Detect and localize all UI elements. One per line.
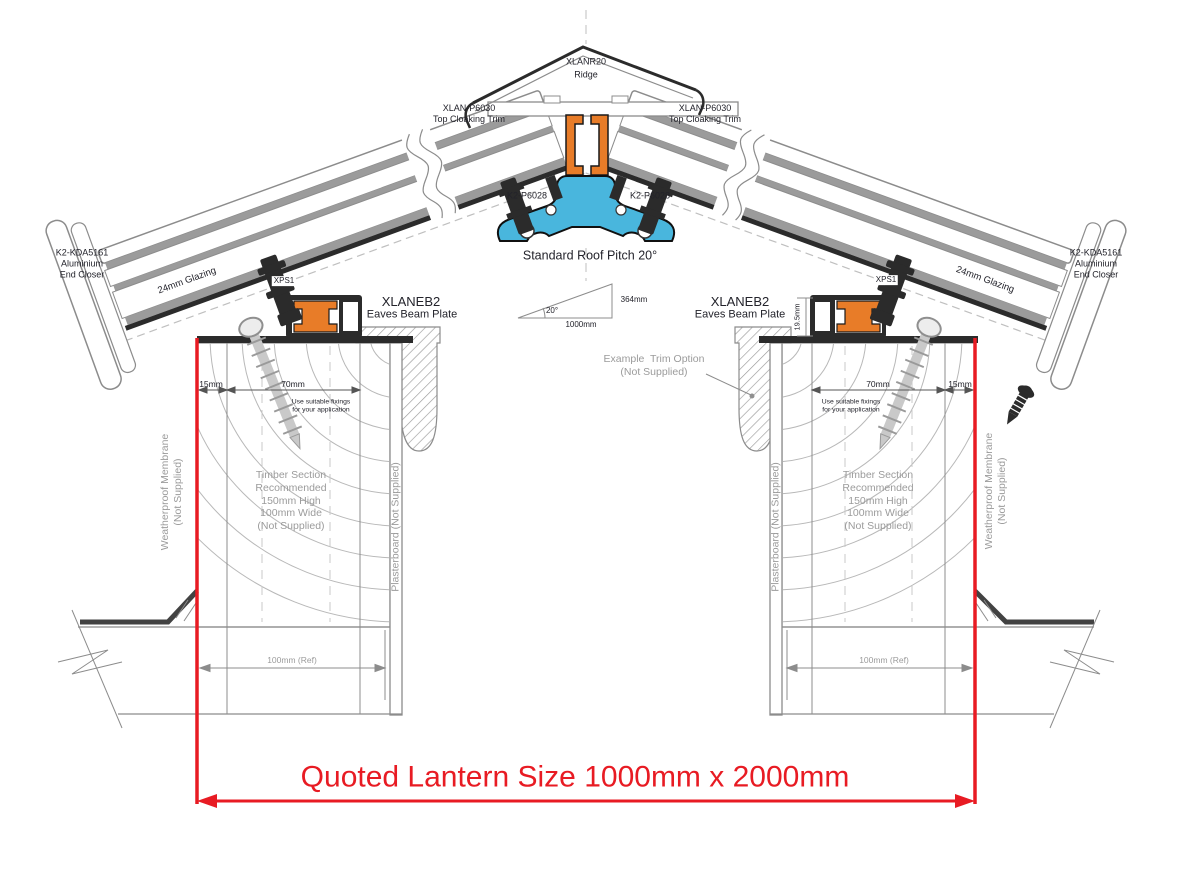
- right-eaves-beam-name: Eaves Beam Plate: [695, 308, 786, 321]
- left-timber-note: Timber SectionRecommended150mm High100mm…: [255, 469, 326, 533]
- right-timber-note: Timber SectionRecommended150mm High100mm…: [842, 469, 913, 533]
- left-upstand-ref-label: 100mm (Ref): [267, 655, 317, 665]
- right-fixing-note: Use suitable fixingsfor your application: [822, 399, 881, 416]
- screw-icon: [999, 382, 1037, 429]
- left-plasterboard-note: Plasterboard (Not Supplied): [390, 462, 403, 592]
- roof-lantern-section-drawing: XLANR20 Ridge XLAN-P6030Top Cloaking Tri…: [0, 0, 1184, 872]
- pitch-rise-label: 364mm: [621, 295, 648, 305]
- quoted-lantern-size: Quoted Lantern Size 1000mm x 2000mm: [301, 760, 850, 797]
- left-eaves-beam-name: Eaves Beam Plate: [367, 308, 458, 321]
- right-gasket-label: XPS1: [874, 275, 898, 285]
- right-cloaking-trim-label: XLAN-P6030Top Cloaking Trim: [669, 103, 741, 125]
- right-upstand-ref-label: 100mm (Ref): [859, 655, 909, 665]
- right-fixing-zone-dim-label: 70mm: [866, 379, 890, 389]
- left-gasket-label: XPS1: [272, 276, 296, 286]
- right-end-closer-label: K2-KDA5161AluminiumEnd Closer: [1070, 248, 1123, 281]
- pitch-run-label: 1000mm: [565, 320, 596, 330]
- right-ridge-fixing-label: K2-P6028: [630, 191, 670, 202]
- ridge-model-label: XLANR20: [566, 57, 606, 68]
- left-membrane-note: Weatherproof Membrane(Not Supplied): [159, 434, 185, 551]
- beam-height-label: 19.5mm: [792, 303, 801, 330]
- right-plasterboard-note: Plasterboard (Not Supplied): [770, 462, 783, 592]
- ridge-profile-orange: [566, 115, 583, 175]
- right-edge-dim-label: 15mm: [948, 379, 972, 389]
- left-ridge-fixing-label: K2-P6028: [507, 191, 547, 202]
- pitch-angle-label: 20°: [546, 306, 558, 316]
- roof-pitch-label: Standard Roof Pitch 20°: [523, 248, 657, 263]
- left-membrane: [80, 591, 197, 622]
- pitch-triangle: [518, 284, 612, 318]
- ridge-name-label: Ridge: [574, 70, 598, 81]
- right-membrane-note: Weatherproof Membrane(Not Supplied): [983, 433, 1009, 550]
- left-fixing-note: Use suitable fixingsfor your application: [292, 399, 351, 416]
- leader-dot: [750, 394, 755, 399]
- trim-option-label: Example Trim Option(Not Supplied): [604, 353, 705, 379]
- left-end-closer-label: K2-KDA5161AluminiumEnd Closer: [56, 248, 109, 281]
- left-cloaking-trim-label: XLAN-P6030Top Cloaking Trim: [433, 103, 505, 125]
- left-fixing-zone-dim-label: 70mm: [281, 379, 305, 389]
- left-edge-dim-label: 15mm: [199, 379, 223, 389]
- right-membrane: [975, 591, 1094, 622]
